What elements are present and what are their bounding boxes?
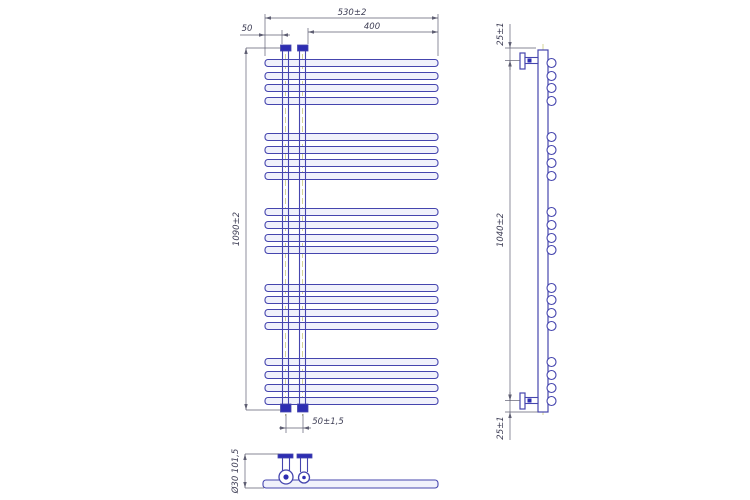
tube-end-circle [547, 234, 556, 243]
tube-end-circle [547, 72, 556, 81]
dimension-label: 1040±2 [496, 213, 506, 247]
dimension-conn-spacing: 50±1,5 [279, 414, 344, 433]
dim-arrowhead [243, 482, 246, 488]
dim-arrowhead [259, 33, 265, 36]
heating-tube [265, 160, 438, 167]
heating-tube [265, 98, 438, 105]
dim-arrowhead [508, 61, 511, 67]
tube-end-circle [547, 133, 556, 142]
connection-fitting [281, 404, 292, 412]
dimension-label: 50 [242, 24, 253, 34]
heating-tube [265, 173, 438, 180]
bottom-view [263, 454, 438, 488]
dimension-label: 25±1 [496, 416, 506, 439]
tube-end-circle [547, 59, 556, 68]
heating-tube [265, 247, 438, 254]
dim-arrowhead [508, 42, 511, 48]
tube-end-circle [547, 84, 556, 93]
tube-end-circle [547, 384, 556, 393]
tube-end-circle [547, 284, 556, 293]
dim-arrowhead [265, 16, 271, 19]
front-view [265, 45, 438, 416]
dim-arrowhead [244, 48, 247, 54]
towel-rail-technical-drawing: 530±2400501090±250±1,525±11040±225±1Ø30 … [0, 0, 750, 500]
tube-end-circle [547, 397, 556, 406]
riser-top-cap [281, 45, 292, 51]
tube-end-circle [547, 371, 556, 380]
tube-end-circle [547, 309, 556, 318]
heating-tube [265, 222, 438, 229]
wall-bracket [520, 393, 538, 409]
dimension-label: 400 [364, 22, 380, 32]
dimension-width-400: 400 [308, 22, 438, 44]
heating-tube [265, 359, 438, 366]
heating-tube [265, 73, 438, 80]
tube-end-circle [547, 322, 556, 331]
heating-tube [265, 285, 438, 292]
heating-tube [265, 310, 438, 317]
dimension-label: 530±2 [338, 8, 367, 18]
heating-tube [265, 372, 438, 379]
tube-end-circle [547, 97, 556, 106]
tube-end-circle [547, 208, 556, 217]
heating-tube [265, 398, 438, 405]
heating-tube [265, 385, 438, 392]
wall-bracket [520, 53, 538, 69]
dim-arrowhead [243, 454, 246, 460]
heating-tube [265, 209, 438, 216]
tube-end-circle [547, 246, 556, 255]
tube-end-circle [547, 146, 556, 155]
tube-end-circle [547, 221, 556, 230]
bracket-flange [520, 393, 525, 409]
riser-top-cap [298, 45, 309, 51]
connection-flange [297, 454, 312, 458]
dim-arrowhead [432, 16, 438, 19]
connection-flange [278, 454, 293, 458]
heating-tube [265, 323, 438, 330]
tube-end-circle [547, 159, 556, 168]
dimension-label: 50±1,5 [312, 417, 343, 427]
collector-profile [538, 50, 548, 412]
tube-end-circle [547, 172, 556, 181]
dim-arrowhead [282, 33, 288, 36]
dim-arrowhead [308, 30, 314, 33]
drawing-sheet: 530±2400501090±250±1,525±11040±225±1Ø30 … [0, 0, 750, 500]
dimension-label: 1090±2 [232, 212, 242, 246]
dimension-side-axis-height: 1040±2 [496, 61, 512, 401]
dim-arrowhead [280, 426, 286, 429]
side-view [520, 44, 556, 418]
dimension-label: Ø30 101,5 [230, 449, 241, 495]
dim-arrowhead [303, 426, 309, 429]
dim-arrowhead [508, 395, 511, 401]
bracket-screw [528, 59, 532, 63]
tube-end-circle [547, 358, 556, 367]
bracket-flange [520, 53, 525, 69]
riser-center-dot [283, 474, 288, 479]
dim-arrowhead [432, 30, 438, 33]
heating-tube [265, 147, 438, 154]
heating-tube [265, 297, 438, 304]
dim-arrowhead [244, 404, 247, 410]
tube-end-circle [547, 296, 556, 305]
dimension-label: 25±1 [496, 22, 506, 45]
bracket-screw [528, 399, 532, 403]
heating-tube [265, 85, 438, 92]
heating-tube [265, 60, 438, 67]
heating-tube [265, 235, 438, 242]
riser-center-dot [302, 476, 306, 480]
dim-arrowhead [508, 412, 511, 418]
heating-tube [265, 134, 438, 141]
connection-fitting [298, 404, 309, 412]
